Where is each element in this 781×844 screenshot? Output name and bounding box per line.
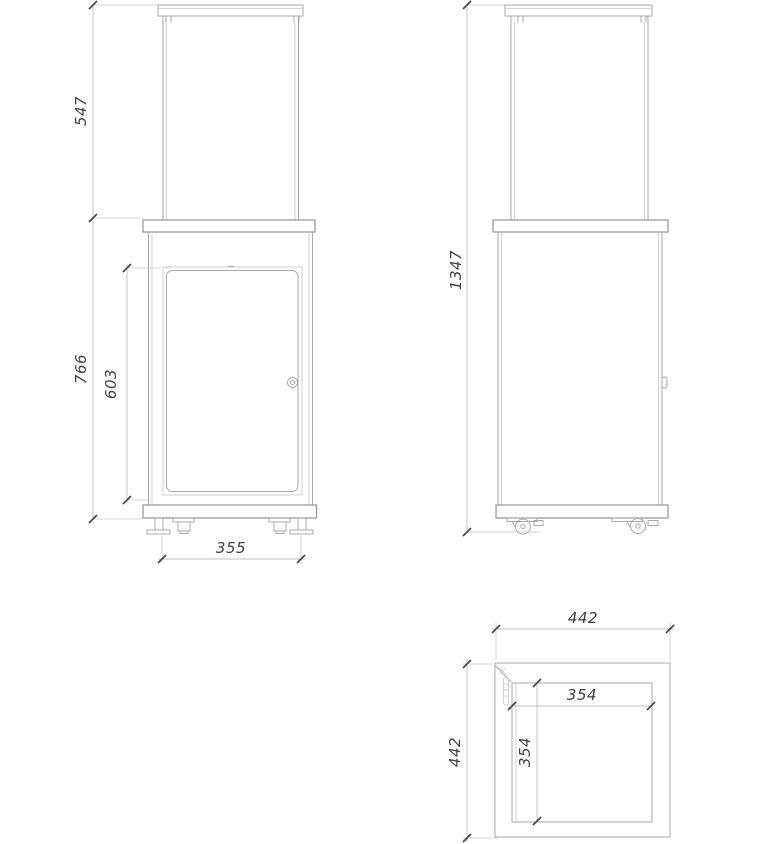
dim-label-inner-depth: 354 — [516, 737, 534, 767]
side-cabinet-body — [498, 232, 662, 505]
top-dim-354-depth: 354 — [516, 679, 541, 825]
side-bottom-band — [496, 505, 668, 518]
front-bottom-band — [143, 505, 317, 518]
front-door-opening — [163, 267, 302, 495]
front-left-foot — [147, 518, 170, 534]
drawing-canvas: 547 766 603 355 — [0, 0, 781, 844]
front-dim-355: 355 — [158, 536, 305, 563]
front-top-cap — [158, 5, 303, 16]
front-right-caster — [269, 518, 290, 534]
top-dim-354-width: 354 — [508, 686, 655, 710]
side-dim-1347: 1347 — [447, 1, 540, 536]
dim-label-outer-width: 442 — [568, 609, 598, 627]
dim-label-door-height: 603 — [102, 369, 120, 399]
side-glass-panel — [511, 16, 648, 220]
side-collar — [493, 220, 668, 232]
front-glass-panel — [163, 16, 299, 220]
front-left-caster — [173, 518, 194, 534]
dim-label-outer-depth: 442 — [446, 737, 464, 767]
top-corner-clamp-detail — [495, 665, 511, 705]
dim-label-inner-width: 354 — [567, 686, 597, 704]
dim-label-cabinet-height: 766 — [72, 354, 90, 384]
front-dim-547: 547 — [72, 1, 158, 519]
front-collar — [143, 220, 315, 232]
side-knob-profile — [662, 377, 667, 388]
dim-label-total-height: 1347 — [447, 250, 465, 290]
front-door-knob — [288, 378, 298, 388]
dim-label-base-width: 355 — [216, 539, 246, 557]
front-door-panel — [167, 271, 299, 492]
front-glass-clamps — [166, 16, 299, 23]
technical-drawing: 547 766 603 355 — [0, 0, 781, 844]
front-view: 547 766 603 355 — [72, 1, 317, 563]
side-view: 1347 — [447, 1, 668, 536]
front-right-foot — [290, 518, 313, 534]
side-right-caster — [612, 518, 658, 534]
front-cabinet-body — [149, 232, 313, 505]
side-glass-clamps — [518, 16, 646, 23]
top-view: 442 442 354 354 — [446, 609, 674, 842]
dim-label-glass-height: 547 — [72, 96, 90, 126]
top-dim-442-depth: 442 — [446, 660, 497, 842]
side-top-cap — [505, 5, 652, 16]
top-dim-442-width: 442 — [492, 609, 674, 660]
